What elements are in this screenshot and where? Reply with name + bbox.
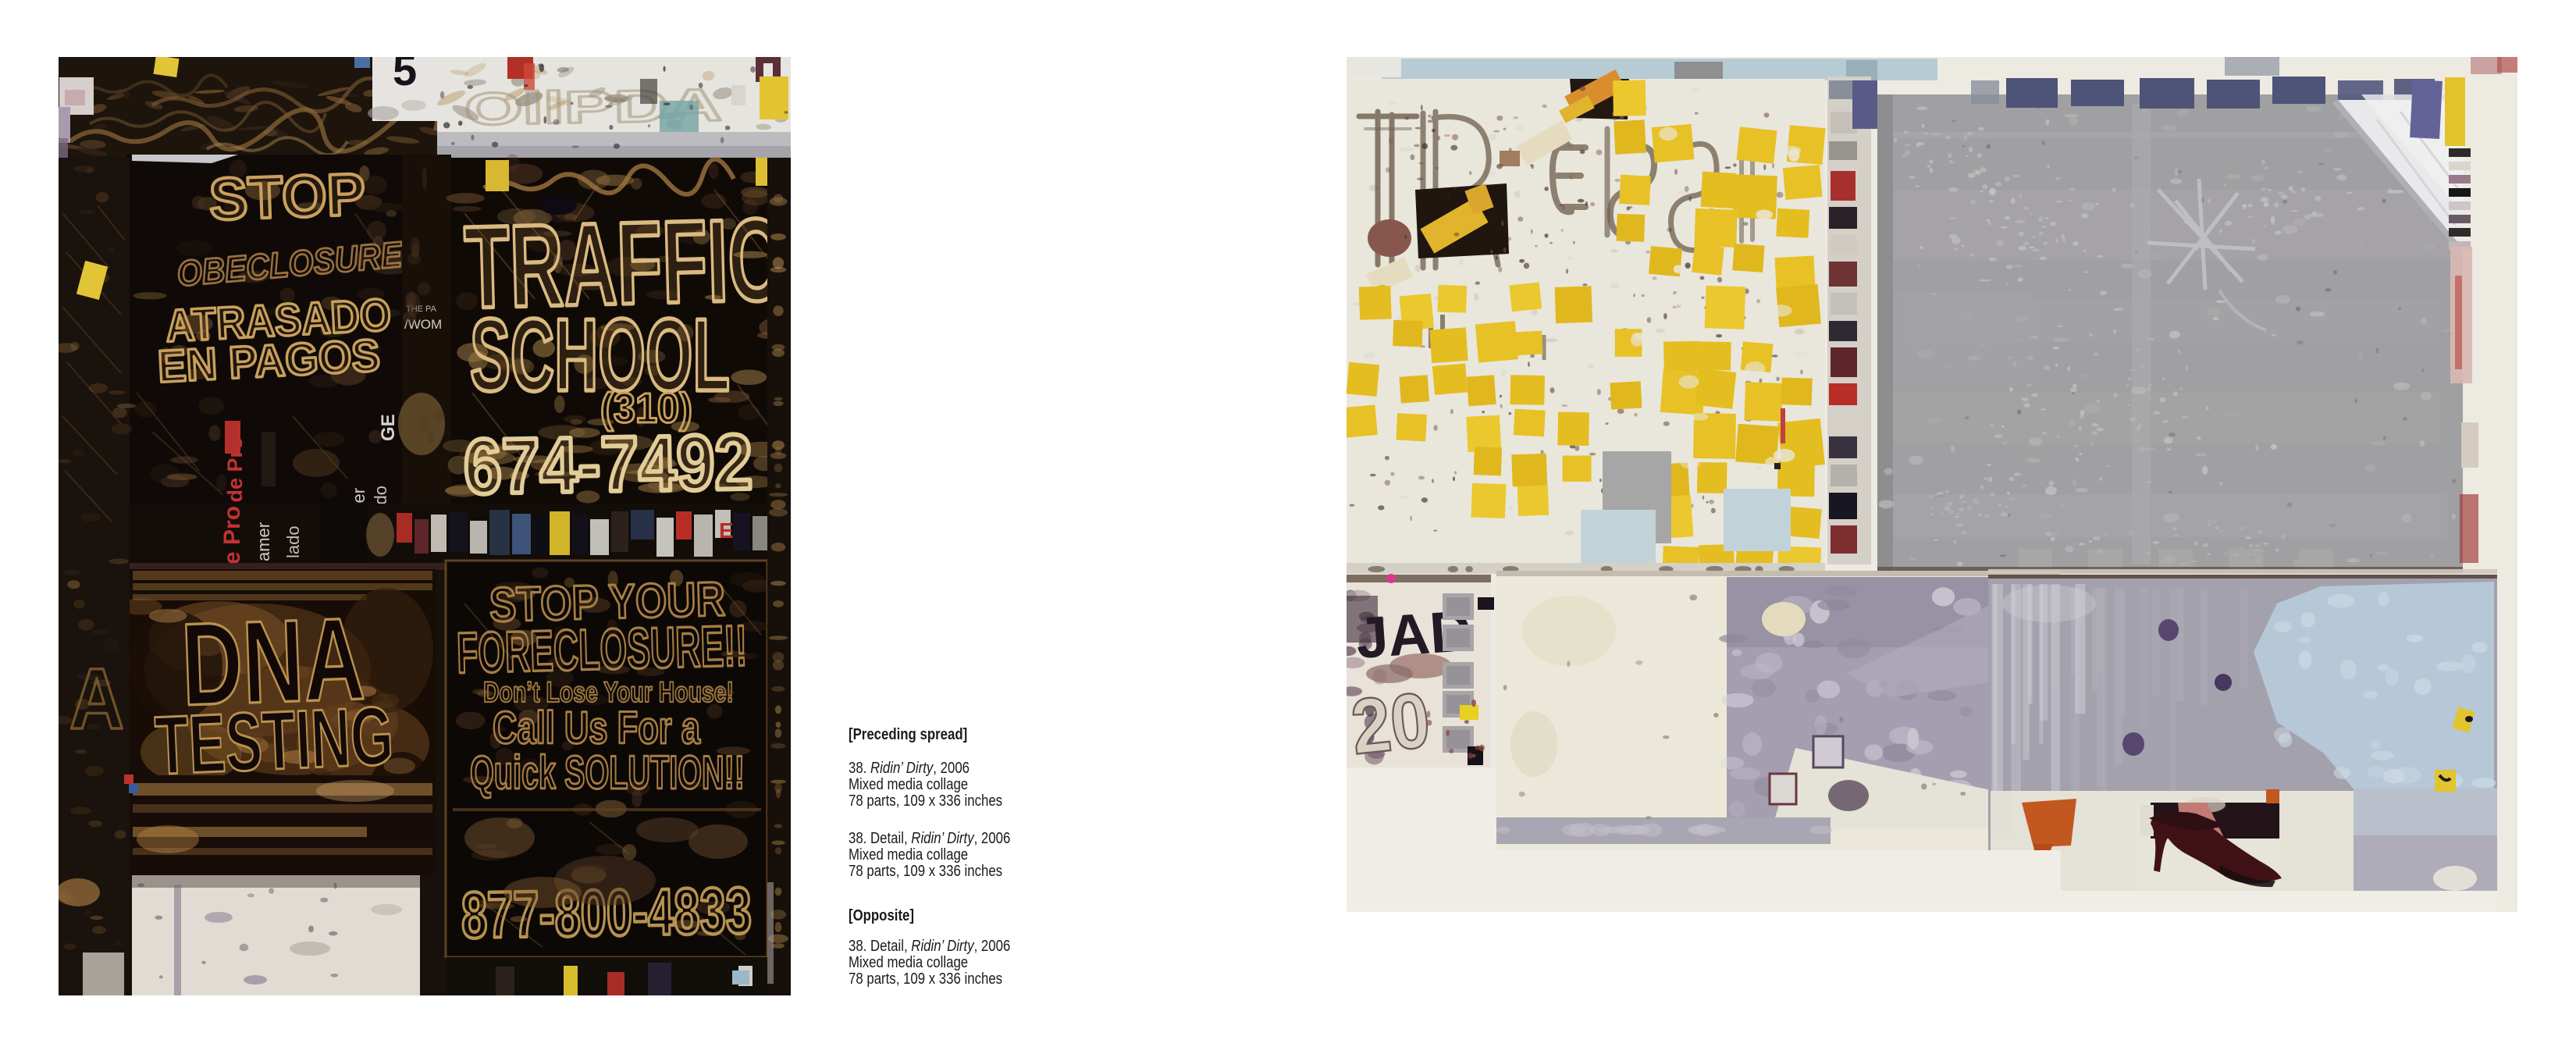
svg-text:STOP: STOP bbox=[208, 162, 367, 233]
svg-text:FORECLOSURE!!: FORECLOSURE!! bbox=[456, 613, 748, 685]
svg-text:E: E bbox=[719, 518, 734, 543]
svg-text:5: 5 bbox=[393, 57, 417, 94]
svg-text:20: 20 bbox=[1347, 676, 1434, 771]
svg-text:GE: GE bbox=[378, 414, 399, 441]
svg-text:674-7492: 674-7492 bbox=[463, 418, 753, 511]
svg-text:A: A bbox=[69, 651, 124, 747]
svg-text:lado: lado bbox=[283, 525, 303, 558]
svg-text:Quick SOLUTION!!: Quick SOLUTION!! bbox=[470, 746, 745, 799]
svg-text:e Pro: e Pro bbox=[219, 506, 245, 564]
svg-text:amer: amer bbox=[254, 522, 273, 561]
